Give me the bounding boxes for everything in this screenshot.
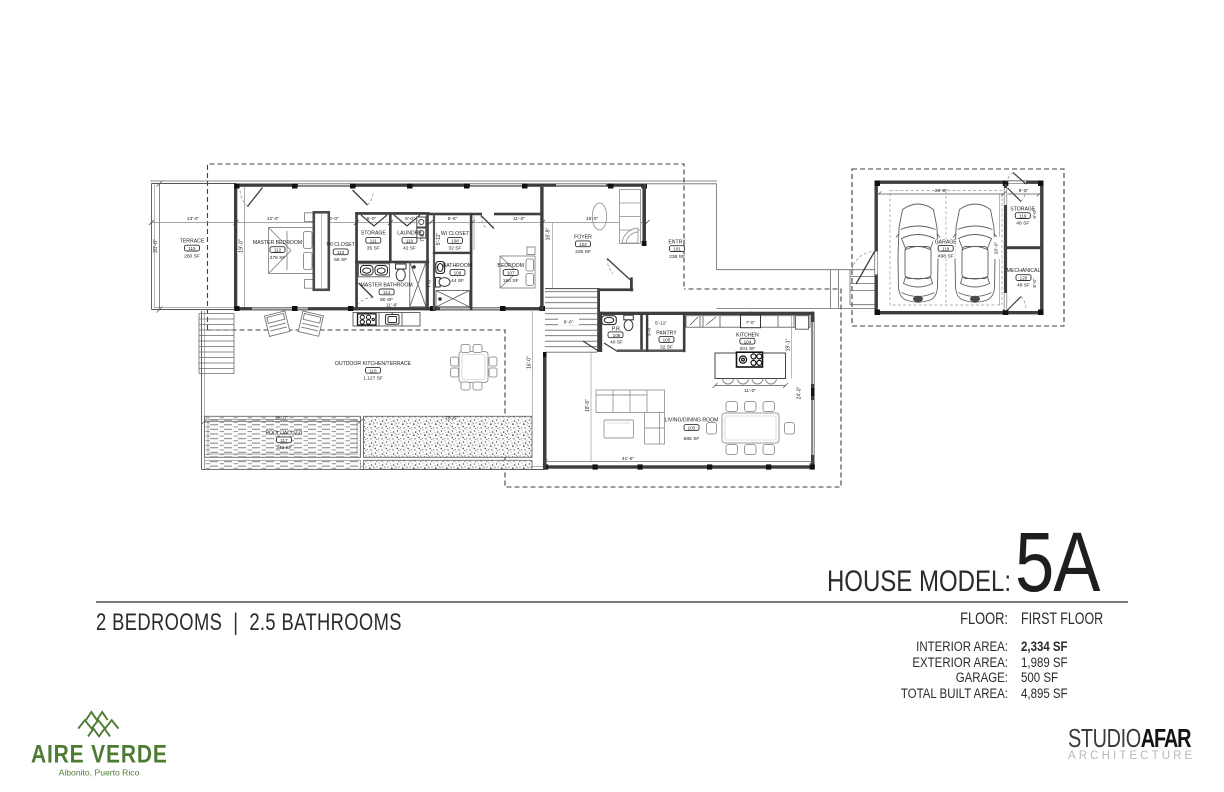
svg-text:MASTER BEDROOM: MASTER BEDROOM <box>253 240 302 246</box>
svg-text:7'-0": 7'-0" <box>420 232 426 242</box>
svg-text:8'-0": 8'-0" <box>564 320 574 326</box>
svg-text:119: 119 <box>1019 214 1027 219</box>
svg-text:238 SF: 238 SF <box>669 254 685 260</box>
svg-text:9'-0": 9'-0" <box>1019 188 1029 194</box>
svg-text:KITCHEN: KITCHEN <box>736 332 759 338</box>
svg-text:P.R.: P.R. <box>612 326 622 332</box>
svg-text:104: 104 <box>744 339 752 344</box>
svg-text:PANTRY: PANTRY <box>656 331 677 337</box>
svg-text:201 SF: 201 SF <box>740 346 756 352</box>
svg-text:342 SF: 342 SF <box>276 445 292 451</box>
svg-text:32 SF: 32 SF <box>448 246 461 252</box>
svg-text:5'-11": 5'-11" <box>655 321 667 327</box>
svg-text:40 SF: 40 SF <box>610 340 623 346</box>
svg-text:118: 118 <box>942 246 950 251</box>
svg-text:115: 115 <box>188 246 196 251</box>
svg-text:5'-11": 5'-11" <box>436 233 442 246</box>
svg-text:19'-0": 19'-0" <box>239 239 245 253</box>
svg-text:8'-0": 8'-0" <box>1032 278 1037 288</box>
svg-text:117: 117 <box>280 438 288 443</box>
svg-text:108: 108 <box>451 239 459 244</box>
svg-text:MASTER BATHROOM: MASTER BATHROOM <box>361 282 413 288</box>
svg-text:66 SF: 66 SF <box>334 257 347 263</box>
svg-text:48 SF: 48 SF <box>1017 282 1030 288</box>
svg-text:20'-0": 20'-0" <box>153 239 159 253</box>
svg-text:LAUNDRY: LAUNDRY <box>397 231 422 237</box>
svg-text:11'-6": 11'-6" <box>386 303 398 309</box>
svg-text:18'-6": 18'-6" <box>445 416 458 422</box>
svg-text:80 SF: 80 SF <box>380 297 393 303</box>
svg-text:106: 106 <box>613 333 621 338</box>
svg-text:44 SF: 44 SF <box>451 278 464 284</box>
svg-text:110: 110 <box>406 238 414 243</box>
svg-text:103: 103 <box>688 426 696 431</box>
svg-text:WI CLOSET: WI CLOSET <box>327 242 356 248</box>
svg-text:16'-0": 16'-0" <box>527 356 533 369</box>
svg-text:13'-0": 13'-0" <box>187 216 200 222</box>
svg-text:18'-9": 18'-9" <box>585 399 591 412</box>
svg-text:685 SF: 685 SF <box>684 436 700 442</box>
svg-text:498 SF: 498 SF <box>938 253 954 259</box>
svg-text:AIRE VERDE: AIRE VERDE <box>31 740 168 768</box>
svg-text:11'-0": 11'-0" <box>744 388 756 394</box>
svg-text:160 SF: 160 SF <box>503 278 519 284</box>
svg-text:ENTRY: ENTRY <box>668 239 686 245</box>
svg-text:7'-0": 7'-0" <box>746 320 756 325</box>
svg-text:1,127 SF: 1,127 SF <box>363 376 383 382</box>
svg-text:120: 120 <box>1020 276 1028 281</box>
svg-text:POOL/JACUZZI: POOL/JACUZZI <box>266 430 303 436</box>
svg-text:260 SF: 260 SF <box>184 254 200 260</box>
svg-text:20'-0": 20'-0" <box>994 242 1000 255</box>
svg-text:114: 114 <box>383 290 391 295</box>
svg-text:OUTDOOR KITCHEN/TERRACE: OUTDOOR KITCHEN/TERRACE <box>335 361 412 367</box>
svg-text:26'-0": 26'-0" <box>275 416 288 422</box>
svg-text:5'-6": 5'-6" <box>448 216 458 222</box>
svg-text:19'-1": 19'-1" <box>786 338 792 351</box>
svg-text:20'-0": 20'-0" <box>935 188 948 194</box>
svg-text:113: 113 <box>337 250 345 255</box>
svg-text:6'-0": 6'-0" <box>329 216 339 222</box>
svg-text:101: 101 <box>673 247 681 252</box>
svg-text:279 SF: 279 SF <box>270 255 286 261</box>
svg-text:116: 116 <box>369 368 377 373</box>
svg-text:112: 112 <box>274 248 282 253</box>
svg-text:TERRACE: TERRACE <box>180 239 205 245</box>
svg-text:225 SF: 225 SF <box>575 249 591 255</box>
svg-text:35 SF: 35 SF <box>367 246 380 252</box>
svg-text:WI CLOSET: WI CLOSET <box>441 231 470 237</box>
svg-text:107: 107 <box>507 271 515 276</box>
svg-text:24'-0": 24'-0" <box>797 386 803 399</box>
svg-text:12'-0": 12'-0" <box>267 216 280 222</box>
svg-text:9'-0": 9'-0" <box>1032 209 1037 219</box>
svg-text:Aibonito, Puerto Rico: Aibonito, Puerto Rico <box>59 768 140 778</box>
svg-text:109: 109 <box>454 271 462 276</box>
svg-text:105: 105 <box>663 338 671 343</box>
svg-text:5'-6": 5'-6" <box>647 326 653 336</box>
svg-text:BEDROOM: BEDROOM <box>497 263 524 269</box>
svg-text:BATHROOM: BATHROOM <box>443 263 472 269</box>
svg-text:STORAGE: STORAGE <box>361 231 387 237</box>
svg-text:MECHANICAL: MECHANICAL <box>1007 268 1041 274</box>
svg-text:48 SF: 48 SF <box>1016 220 1029 226</box>
svg-text:102: 102 <box>579 242 587 247</box>
svg-text:GARAGE: GARAGE <box>935 239 958 245</box>
svg-text:11'-0": 11'-0" <box>513 216 525 222</box>
svg-text:42 SF: 42 SF <box>403 246 416 252</box>
svg-text:32 SF: 32 SF <box>660 344 673 350</box>
svg-text:7'-3": 7'-3" <box>427 278 433 288</box>
svg-text:16'-9": 16'-9" <box>546 227 552 240</box>
svg-text:41'-6": 41'-6" <box>622 456 635 462</box>
svg-text:FOYER: FOYER <box>574 235 592 241</box>
svg-text:111: 111 <box>370 238 377 243</box>
